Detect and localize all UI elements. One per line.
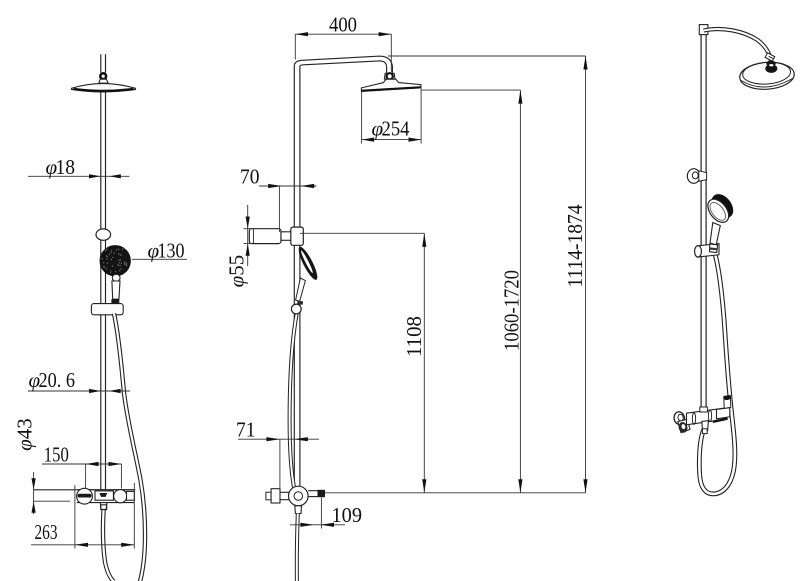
svg-text:φ55: φ55 bbox=[225, 255, 249, 288]
svg-text:130: 130 bbox=[158, 239, 185, 263]
svg-text:150: 150 bbox=[44, 442, 69, 466]
svg-text:20. 6: 20. 6 bbox=[39, 368, 76, 392]
svg-text:18: 18 bbox=[56, 155, 76, 179]
svg-text:109: 109 bbox=[332, 503, 363, 527]
svg-text:1108: 1108 bbox=[402, 316, 426, 357]
svg-text:254: 254 bbox=[382, 117, 410, 141]
svg-text:1114-1874: 1114-1874 bbox=[563, 204, 587, 287]
svg-text:400: 400 bbox=[329, 12, 357, 36]
svg-text:71: 71 bbox=[236, 417, 256, 441]
svg-text:70: 70 bbox=[240, 164, 260, 188]
svg-text:1060-1720: 1060-1720 bbox=[499, 270, 523, 351]
svg-text:φ43: φ43 bbox=[13, 418, 37, 451]
svg-text:263: 263 bbox=[35, 520, 58, 544]
